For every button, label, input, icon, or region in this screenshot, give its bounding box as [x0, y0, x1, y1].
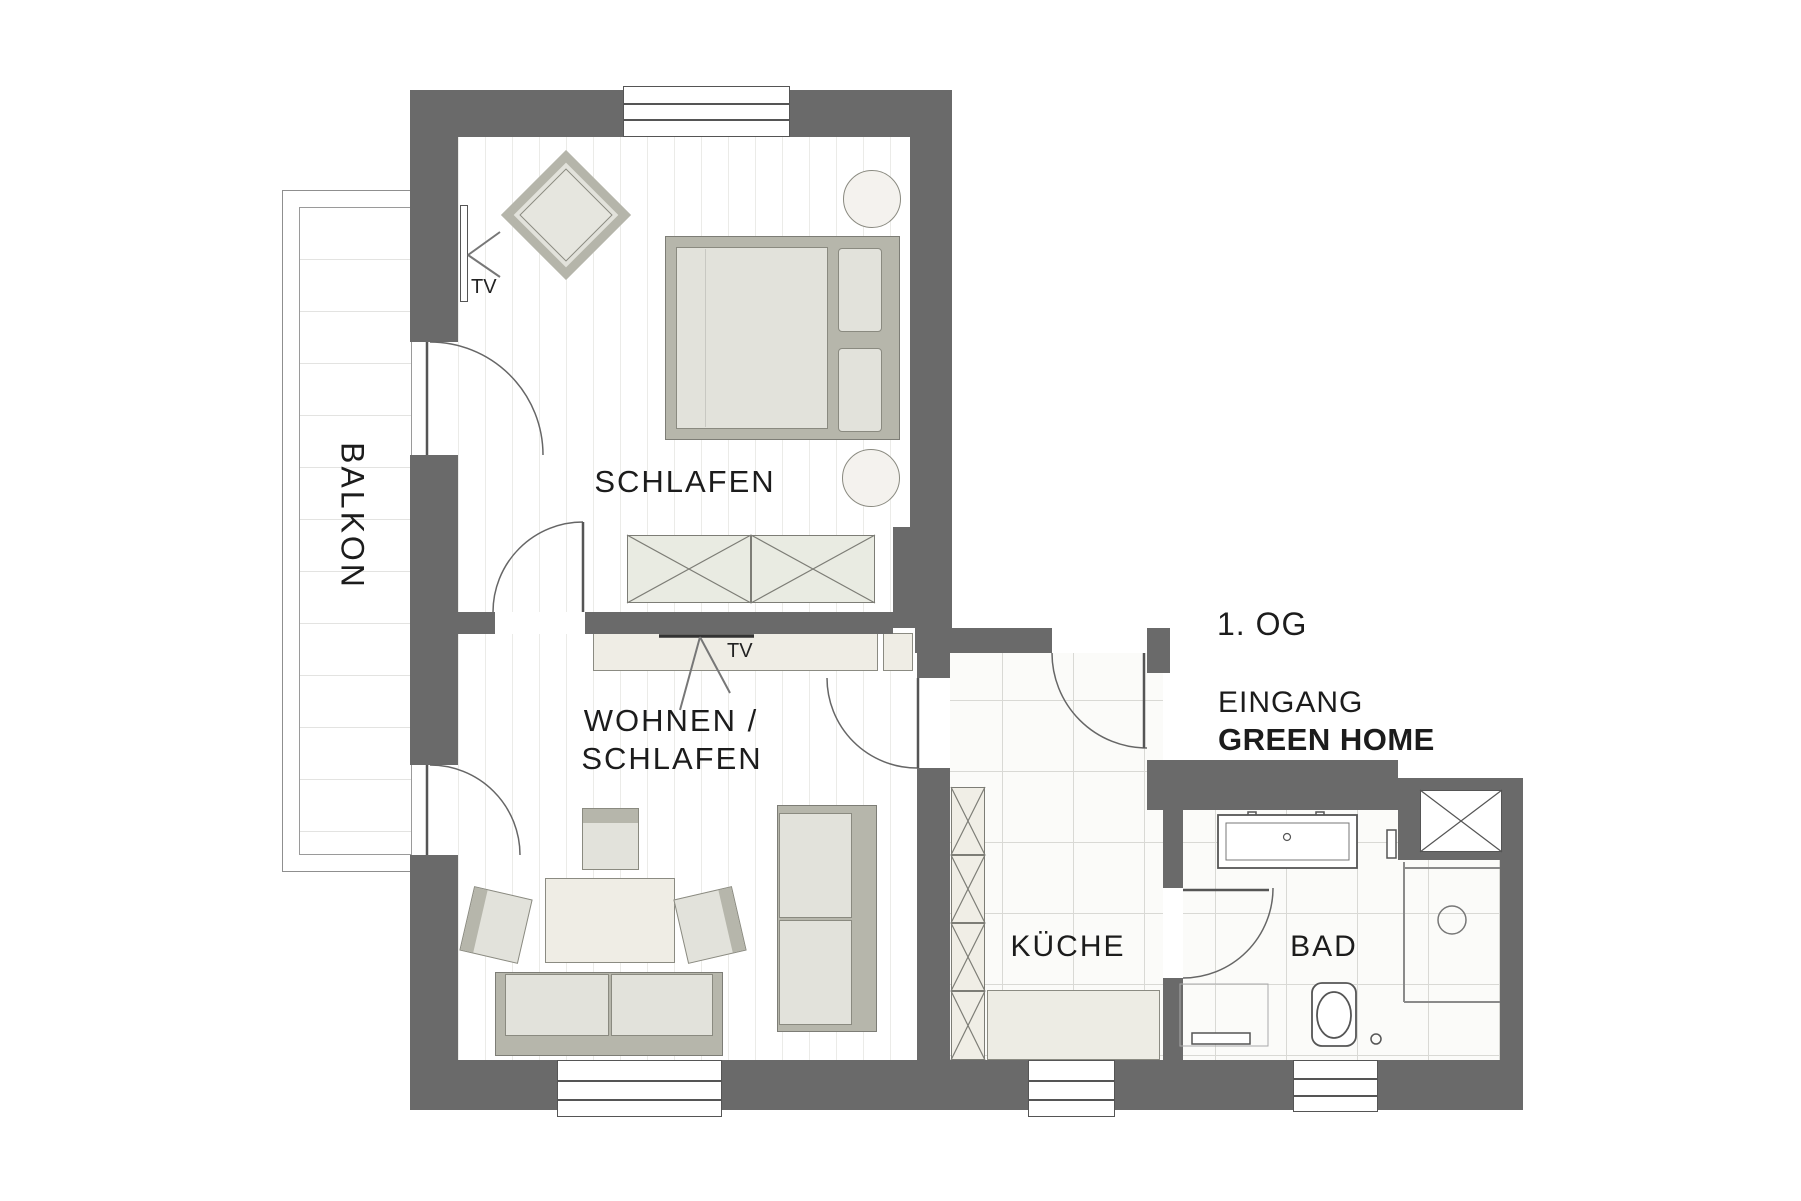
living-label-line2: SCHLAFEN	[581, 741, 762, 777]
entrance-name-label: GREEN HOME	[1218, 722, 1435, 758]
door-arc	[827, 678, 917, 768]
kitchen-cabinet-x	[951, 787, 985, 1060]
door-arc	[493, 522, 583, 612]
door-arc	[430, 765, 520, 855]
floor-plan: BALKON	[0, 0, 1801, 1201]
door-arc	[1052, 653, 1147, 748]
shower-drain	[1438, 906, 1466, 934]
shower	[1404, 862, 1500, 1002]
floor-drain	[1371, 1034, 1381, 1044]
bath-label: BAD	[1290, 930, 1358, 965]
sink-vanity	[1218, 812, 1357, 868]
wardrobe-x	[627, 535, 875, 603]
kitchen-label: KÜCHE	[1010, 930, 1125, 965]
tv-label-living: TV	[727, 640, 753, 663]
bedroom-label: SCHLAFEN	[594, 464, 775, 500]
door-arc	[430, 342, 543, 455]
toilet	[1312, 983, 1356, 1046]
tv-mount	[468, 232, 500, 277]
towel-radiator	[1387, 830, 1396, 858]
floor-level-label: 1. OG	[1217, 606, 1307, 643]
shaft-x	[1420, 790, 1502, 852]
living-label-line1: WOHNEN /	[584, 703, 758, 739]
door-arc	[1183, 888, 1273, 978]
balcony-label: BALKON	[334, 442, 371, 590]
entrance-label: EINGANG	[1218, 686, 1363, 721]
bath-bench	[1180, 984, 1268, 1046]
tv-label-bedroom: TV	[471, 276, 497, 299]
